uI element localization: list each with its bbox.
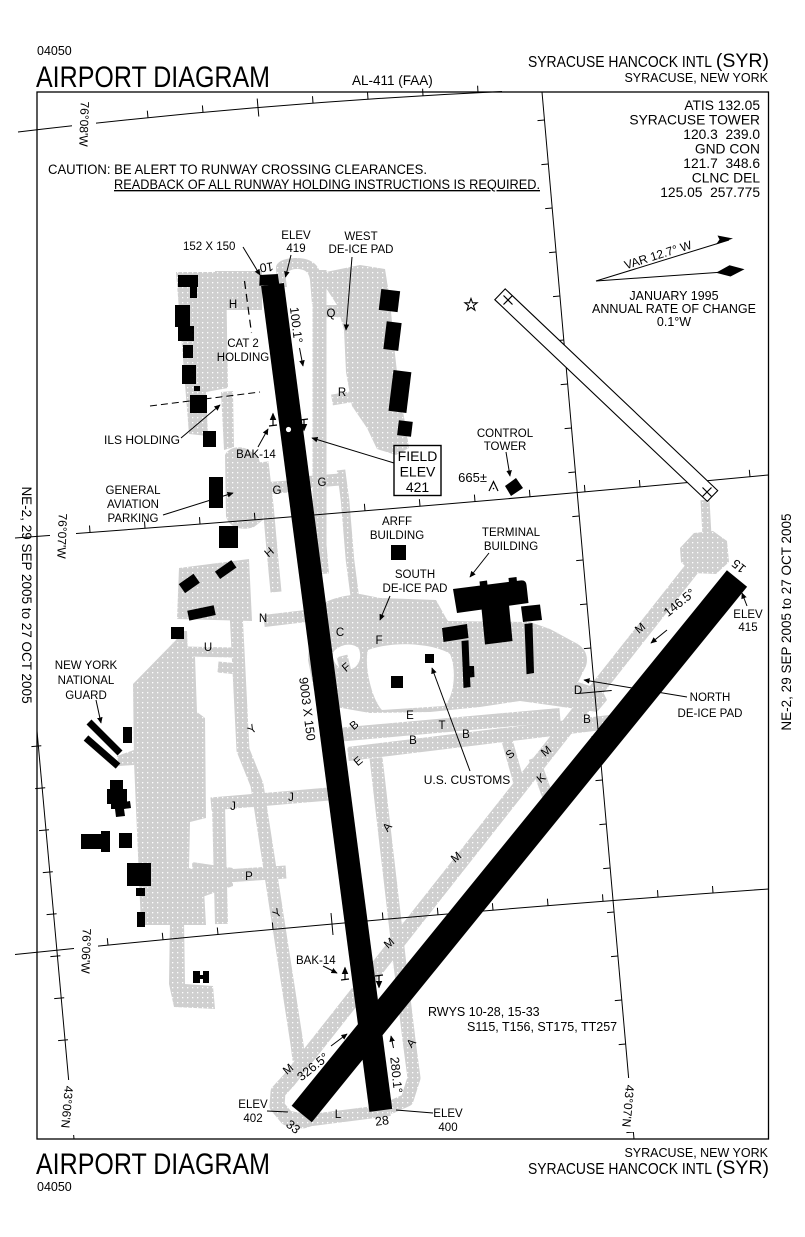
svg-text:RWYS 10-28, 15-33: RWYS 10-28, 15-33 — [428, 1005, 540, 1019]
svg-text:(SYR): (SYR) — [716, 50, 769, 72]
svg-text:CLNC DEL: CLNC DEL — [692, 171, 761, 186]
svg-text:ELEV: ELEV — [400, 464, 436, 480]
svg-text:F: F — [375, 635, 382, 647]
svg-text:E: E — [406, 710, 414, 722]
svg-text:ELEV: ELEV — [733, 609, 763, 621]
svg-text:76°07'W: 76°07'W — [54, 513, 70, 559]
svg-text:G: G — [318, 477, 327, 489]
svg-text:10: 10 — [259, 259, 275, 275]
svg-text:BAK-14: BAK-14 — [236, 449, 276, 461]
svg-text:B: B — [583, 714, 591, 726]
svg-text:AL-411 (FAA): AL-411 (FAA) — [352, 73, 433, 88]
svg-text:BUILDING: BUILDING — [484, 541, 538, 553]
svg-text:Q: Q — [327, 308, 336, 320]
svg-text:CAT 2: CAT 2 — [227, 338, 259, 350]
svg-text:NORTH: NORTH — [690, 692, 731, 704]
svg-text:U.S. CUSTOMS: U.S. CUSTOMS — [424, 773, 510, 787]
svg-text:U: U — [204, 642, 212, 654]
svg-text:665±: 665± — [458, 470, 487, 485]
svg-text:04050: 04050 — [37, 44, 72, 58]
svg-text:DE-ICE PAD: DE-ICE PAD — [329, 244, 394, 256]
svg-text:ELEV: ELEV — [433, 1108, 463, 1120]
svg-text:DE-ICE PAD: DE-ICE PAD — [383, 583, 448, 595]
svg-text:G: G — [273, 485, 282, 497]
svg-text:L: L — [335, 1109, 342, 1121]
svg-text:P: P — [245, 871, 253, 883]
svg-text:NE-2, 29 SEP 2005 to 27 OCT 20: NE-2, 29 SEP 2005 to 27 OCT 2005 — [19, 486, 34, 703]
svg-text:120.3 239.0: 120.3 239.0 — [683, 127, 760, 142]
svg-text:76°08'W: 76°08'W — [76, 101, 92, 147]
svg-text:04050: 04050 — [37, 1180, 72, 1194]
svg-text:J: J — [230, 801, 236, 813]
svg-text:T: T — [438, 720, 445, 732]
svg-text:76°06'W: 76°06'W — [78, 928, 94, 974]
svg-text:SYRACUSE, NEW YORK: SYRACUSE, NEW YORK — [624, 71, 768, 85]
svg-text:C: C — [336, 627, 344, 639]
svg-text:28: 28 — [374, 1113, 390, 1129]
svg-text:S115, T156, ST175, TT257: S115, T156, ST175, TT257 — [467, 1020, 617, 1034]
svg-text:JANUARY 1995: JANUARY 1995 — [629, 289, 718, 303]
svg-text:ANNUAL RATE OF CHANGE: ANNUAL RATE OF CHANGE — [592, 302, 756, 316]
svg-text:BUILDING: BUILDING — [370, 530, 424, 542]
svg-text:J: J — [288, 792, 294, 804]
svg-text:H: H — [229, 299, 237, 311]
svg-text:ELEV: ELEV — [281, 230, 311, 242]
svg-text:GND CON: GND CON — [695, 142, 760, 157]
svg-text:415: 415 — [738, 622, 757, 634]
svg-text:ARFF: ARFF — [382, 516, 412, 528]
svg-text:GUARD: GUARD — [65, 690, 107, 702]
svg-text:SOUTH: SOUTH — [395, 569, 435, 581]
svg-text:HOLDING: HOLDING — [217, 352, 269, 364]
svg-text:GENERAL: GENERAL — [106, 485, 162, 497]
svg-text:NATIONAL: NATIONAL — [58, 675, 115, 687]
svg-text:125.05 257.775: 125.05 257.775 — [660, 185, 760, 200]
svg-text:DE-ICE PAD: DE-ICE PAD — [678, 708, 743, 720]
svg-text:121.7 348.6: 121.7 348.6 — [683, 156, 760, 171]
svg-text:D: D — [574, 685, 582, 697]
svg-text:N: N — [259, 613, 267, 625]
svg-text:(SYR): (SYR) — [716, 1157, 769, 1179]
svg-text:419: 419 — [286, 243, 305, 255]
svg-text:152 X 150: 152 X 150 — [183, 241, 235, 253]
svg-text:FIELD: FIELD — [398, 448, 438, 464]
svg-text:CONTROL: CONTROL — [477, 428, 534, 440]
svg-text:B: B — [462, 729, 470, 741]
svg-text:AVIATION: AVIATION — [107, 499, 159, 511]
svg-text:AIRPORT DIAGRAM: AIRPORT DIAGRAM — [36, 1148, 270, 1181]
svg-text:ELEV: ELEV — [238, 1099, 268, 1111]
svg-text:AIRPORT DIAGRAM: AIRPORT DIAGRAM — [36, 61, 270, 94]
svg-text:421: 421 — [406, 479, 430, 495]
svg-text:WEST: WEST — [344, 231, 377, 243]
svg-text:TOWER: TOWER — [484, 441, 527, 453]
svg-text:SYRACUSE HANCOCK INTL: SYRACUSE HANCOCK INTL — [528, 54, 712, 71]
svg-text:R: R — [338, 387, 346, 399]
svg-text:NE-2, 29 SEP 2005 to 27 OCT 20: NE-2, 29 SEP 2005 to 27 OCT 2005 — [779, 513, 794, 730]
svg-text:PARKING: PARKING — [108, 513, 159, 525]
svg-text:400: 400 — [438, 1122, 457, 1134]
svg-text:SYRACUSE HANCOCK INTL: SYRACUSE HANCOCK INTL — [528, 1161, 712, 1178]
svg-text:BAK-14: BAK-14 — [296, 955, 336, 967]
svg-text:CAUTION: BE ALERT TO RUNWAY CR: CAUTION: BE ALERT TO RUNWAY CROSSING CLE… — [48, 162, 427, 177]
svg-text:ATIS 132.05: ATIS 132.05 — [684, 98, 760, 113]
svg-text:402: 402 — [243, 1113, 262, 1125]
svg-text:B: B — [409, 735, 417, 747]
svg-text:READBACK OF ALL RUNWAY HOLDING: READBACK OF ALL RUNWAY HOLDING INSTRUCTI… — [114, 177, 540, 192]
svg-text:0.1°W: 0.1°W — [657, 315, 691, 329]
svg-text:NEW YORK: NEW YORK — [55, 660, 118, 672]
svg-text:TERMINAL: TERMINAL — [482, 527, 541, 539]
svg-text:SYRACUSE TOWER: SYRACUSE TOWER — [629, 113, 760, 128]
svg-text:ILS HOLDING: ILS HOLDING — [104, 433, 180, 447]
